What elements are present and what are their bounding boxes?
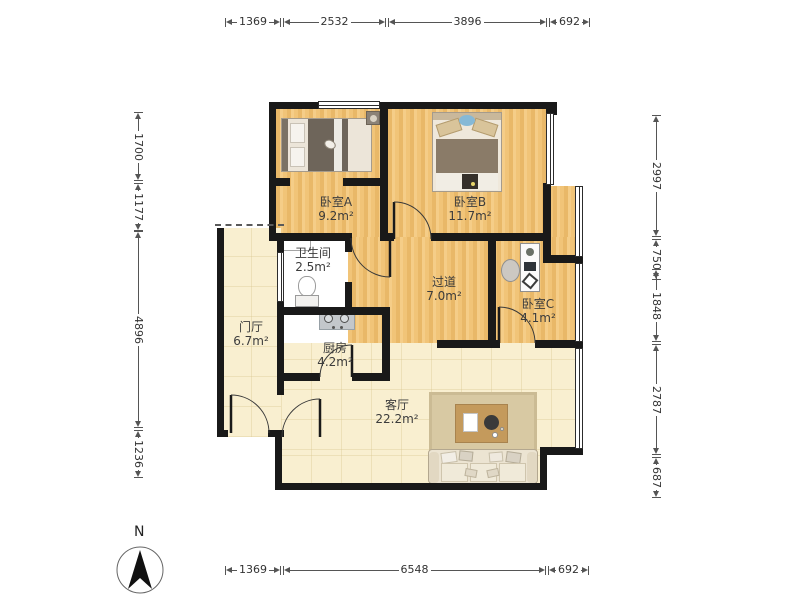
room-label-living: 客厅 22.2m² <box>361 398 433 426</box>
wall <box>275 430 282 490</box>
dimension-right-3: 1848 <box>649 269 663 342</box>
wall <box>431 233 551 241</box>
bed-cushion <box>459 115 475 126</box>
window <box>318 101 380 109</box>
burner <box>324 314 333 323</box>
dim-line <box>656 122 657 160</box>
room-name: 客厅 <box>361 398 433 412</box>
cup-icon <box>492 432 498 438</box>
dim-tick <box>546 18 547 27</box>
dim-tick <box>134 427 143 428</box>
room-name: 卧室A <box>300 195 372 209</box>
wall <box>343 178 385 186</box>
room-label-bathroom: 卫生间 2.5m² <box>279 246 347 274</box>
room-name: 门厅 <box>215 320 287 334</box>
cup-icon <box>500 427 504 431</box>
wall <box>488 241 496 348</box>
floor-plan: N 卧室A 9.2m² 卧室B 11.7m² 卫生间 2.5m² 过道 7.0m… <box>0 0 800 600</box>
dim-tick <box>385 18 386 27</box>
knob <box>340 326 343 329</box>
open-boundary <box>215 224 284 226</box>
sofa-icon <box>428 449 538 484</box>
dim-tick <box>652 236 661 237</box>
tray-dot <box>471 182 475 186</box>
wall <box>277 307 389 315</box>
knob <box>332 326 335 329</box>
dim-value: 1236 <box>132 438 144 470</box>
wall <box>543 183 551 263</box>
room-label-foyer: 门厅 6.7m² <box>215 320 287 348</box>
dimension-top-1: 1369 <box>225 16 281 28</box>
dim-tick <box>545 566 546 575</box>
dimension-left-2: 1177 <box>131 183 145 229</box>
room-name: 卫生间 <box>279 246 347 260</box>
dim-line <box>656 276 657 290</box>
window <box>575 348 583 449</box>
dim-value: 6548 <box>399 564 431 576</box>
dimension-bottom-2: 6548 <box>283 564 546 576</box>
room-area: 2.5m² <box>279 260 347 274</box>
dim-line <box>656 322 657 336</box>
dim-tick <box>280 566 281 575</box>
room-area: 11.7m² <box>434 209 506 223</box>
bed-duvet <box>436 139 498 173</box>
compass-north-label: N <box>134 524 144 540</box>
bed-pillow <box>472 118 499 138</box>
dim-tick <box>588 566 589 575</box>
toilet-tank <box>295 295 319 307</box>
dim-tick <box>589 18 590 27</box>
dimension-right-5: 687 <box>649 457 663 483</box>
sofa-seat <box>499 463 526 482</box>
dim-line <box>656 416 657 449</box>
wall <box>380 102 388 241</box>
room-name: 卧室C <box>502 297 574 311</box>
dim-line <box>290 22 319 23</box>
dim-value: 692 <box>556 564 581 576</box>
sofa-arm <box>527 452 537 483</box>
compass-circle <box>117 547 163 593</box>
wall <box>380 102 557 109</box>
dim-value: 2997 <box>650 160 662 192</box>
dim-value: 1369 <box>237 564 269 576</box>
wall <box>275 483 547 490</box>
dim-tick <box>652 497 661 498</box>
dim-tick <box>134 180 143 181</box>
dim-line <box>138 238 139 314</box>
dimension-top-2: 2532 <box>283 16 386 28</box>
room-name: 过道 <box>408 275 480 289</box>
compass-needle-icon <box>128 550 152 589</box>
dim-line <box>290 570 399 571</box>
dim-tick <box>652 454 661 455</box>
chair-icon <box>501 259 520 282</box>
dimension-top-4: 692 <box>549 16 577 28</box>
kettle-icon <box>484 415 499 430</box>
bed-tray <box>462 174 478 189</box>
sofa-arm <box>429 452 439 483</box>
nightstand-icon <box>366 111 380 125</box>
paper-icon <box>463 413 478 432</box>
room-area: 9.2m² <box>300 209 372 223</box>
room-label-hallway: 过道 7.0m² <box>408 275 480 303</box>
dimension-left-1: 1700 <box>131 112 145 181</box>
wall <box>540 447 547 490</box>
room-area: 7.0m² <box>408 289 480 303</box>
wall <box>382 307 390 381</box>
dim-tick <box>652 341 661 342</box>
sofa-pillow <box>486 468 499 478</box>
dim-value: 1369 <box>237 16 269 28</box>
dim-line <box>431 570 540 571</box>
wall <box>345 282 352 312</box>
dim-value: 1177 <box>132 191 144 223</box>
dim-value: 4896 <box>132 314 144 346</box>
room-label-kitchen: 厨房 4.2m² <box>299 341 371 369</box>
desk-icon <box>520 243 540 292</box>
room-name: 卧室B <box>434 195 506 209</box>
dim-value: 3896 <box>452 16 484 28</box>
dim-value: 687 <box>650 465 662 490</box>
toilet-icon <box>298 276 316 297</box>
room-label-bedroom-c: 卧室C 4.1m² <box>502 297 574 325</box>
dimension-left-3: 4896 <box>131 231 145 428</box>
dim-tick <box>280 18 281 27</box>
dim-line <box>656 192 657 230</box>
bed-pillow <box>290 147 305 167</box>
dimension-left-4: 1236 <box>131 430 145 478</box>
bed-pillow <box>290 123 305 143</box>
single-bed-icon <box>281 118 372 172</box>
room-name: 厨房 <box>299 341 371 355</box>
room-area: 6.7m² <box>215 334 287 348</box>
sofa-pillow <box>459 450 474 461</box>
dimension-top-3: 3896 <box>388 16 547 28</box>
bed-headboard <box>282 119 288 171</box>
wall <box>269 102 318 109</box>
room-area: 4.1m² <box>502 311 574 325</box>
room-area: 4.2m² <box>299 355 371 369</box>
dim-line <box>351 22 380 23</box>
window <box>575 186 583 257</box>
wall <box>269 102 276 241</box>
dim-value: 2532 <box>319 16 351 28</box>
laptop-icon <box>524 262 536 271</box>
dimension-bottom-3: 692 <box>548 564 576 576</box>
sofa-pillow <box>489 451 504 462</box>
room-label-bedroom-b: 卧室B 11.7m² <box>434 195 506 223</box>
plant-icon <box>526 248 534 256</box>
dim-tick <box>134 477 143 478</box>
lamp <box>370 115 377 122</box>
coffee-table-icon <box>455 404 508 443</box>
double-bed-icon <box>432 112 502 192</box>
dim-value: 1700 <box>132 131 144 163</box>
dimension-right-2: 750 <box>649 239 663 267</box>
room-area: 22.2m² <box>361 412 433 426</box>
dim-line <box>656 351 657 384</box>
dim-value: 692 <box>557 16 582 28</box>
room-label-bedroom-a: 卧室A 9.2m² <box>300 195 372 223</box>
dim-line <box>138 119 139 131</box>
dim-line <box>484 22 541 23</box>
monitor-icon <box>522 273 539 290</box>
window <box>575 263 583 342</box>
dimension-right-1: 2997 <box>649 115 663 237</box>
dimension-bottom-1: 1369 <box>225 564 281 576</box>
dim-line <box>138 346 139 422</box>
dim-value: 2787 <box>650 384 662 416</box>
dim-line <box>395 22 452 23</box>
dim-value: 1848 <box>650 290 662 322</box>
dimension-right-4: 2787 <box>649 344 663 455</box>
burner <box>340 314 349 323</box>
window <box>546 113 554 185</box>
dim-line <box>138 163 139 175</box>
